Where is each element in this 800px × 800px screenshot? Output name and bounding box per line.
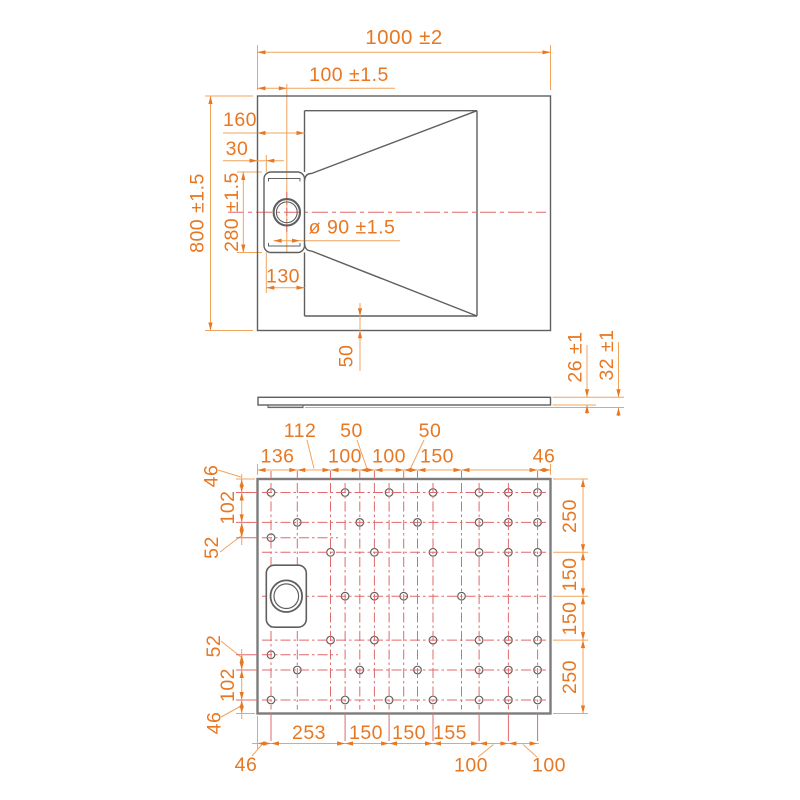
dim-edge-to-basin: 160: [223, 109, 257, 131]
dimension-arrowhead: [616, 408, 620, 416]
dimension-arrowhead: [352, 468, 360, 472]
dim-drain-recess-length: 280 ±1.5: [221, 172, 243, 252]
dimension-arrowhead: [543, 468, 551, 472]
tray-outline-top-view: [258, 96, 551, 331]
dim-bottom-top-150: 150: [420, 446, 454, 468]
dimension-arrowhead: [581, 552, 585, 560]
dimension-arrowhead: [289, 468, 297, 472]
dim-bottom-46: 46: [235, 754, 258, 776]
drain-frame-bottom-band: [269, 243, 301, 246]
dim-bottom-top-136: 136: [260, 446, 294, 468]
tray-profile: [258, 397, 551, 405]
dimension-arrowhead: [240, 485, 244, 493]
dimension-arrowhead: [530, 468, 538, 472]
drawing-svg: 1000 ±2 100 ±1.5 160 30 800 ±1.5 280 ±1.…: [0, 0, 800, 800]
slope-fold-line-upper: [312, 111, 478, 174]
dimension-arrowhead: [581, 632, 585, 640]
slope-fold-line-lower: [312, 251, 478, 316]
dimension-arrowhead: [543, 50, 551, 54]
dimension-arrowhead: [323, 468, 331, 472]
drain-plate-outer-circle: [271, 580, 303, 612]
dimension-arrowhead: [240, 493, 244, 501]
drain-corner-fillet-top: [305, 174, 312, 182]
dimension-arrowhead: [240, 692, 244, 700]
dim-edge-to-drain: 30: [226, 138, 249, 160]
dim-rim-width: 50: [336, 345, 358, 368]
dimension-arrowhead: [337, 741, 345, 745]
dimension-arrowhead: [471, 741, 479, 745]
dim-right-250b: 250: [559, 660, 581, 694]
dimension-arrowhead: [258, 50, 266, 54]
dimension-arrowhead: [530, 741, 538, 745]
dim-bottom-top-50b: 50: [419, 420, 442, 442]
dim-left-46: 46: [201, 465, 223, 488]
drain-frame-top-band: [269, 179, 301, 182]
dimension-arrowhead: [454, 468, 462, 472]
dimension-arrowhead: [462, 468, 470, 472]
dimension-arrowhead: [208, 96, 212, 104]
dimension-arrowhead: [581, 479, 585, 487]
drain-boss-profile: [268, 405, 303, 408]
dimension-arrowhead: [358, 308, 362, 316]
dim-left-lower-46: 46: [204, 712, 226, 735]
dim-total-height: 32 ±1: [596, 329, 618, 380]
dimension-arrowhead: [292, 239, 300, 243]
dimension-arrowhead: [279, 86, 287, 90]
dimension-arrowhead: [271, 741, 279, 745]
dim-bottom-top-112: 112: [284, 420, 317, 442]
dim-right-150b: 150: [559, 601, 581, 635]
dimension-arrowhead: [331, 468, 339, 472]
dimension-arrowhead: [410, 468, 418, 472]
top-view: [258, 96, 551, 331]
dim-drain-offset: 100 ±1.5: [309, 64, 389, 86]
dim-drain-recess-width: 130: [266, 266, 300, 288]
dimension-arrowhead: [240, 522, 244, 530]
dim-bottom-253: 253: [292, 722, 326, 744]
dimension-arrowhead: [425, 741, 433, 745]
dim-bottom-155: 155: [433, 722, 467, 744]
dim-bottom-150a: 150: [349, 722, 383, 744]
technical-drawing-sheet: 1000 ±2 100 ±1.5 160 30 800 ±1.5 280 ±1.…: [0, 0, 800, 800]
dimension-arrowhead: [418, 468, 426, 472]
dim-drain-diameter: ø 90 ±1.5: [309, 217, 396, 239]
dim-right-250a: 250: [559, 499, 581, 533]
dimension-arrowhead: [258, 86, 266, 90]
dim-right-150a: 150: [559, 557, 581, 591]
dimension-arrowhead: [479, 741, 487, 745]
leader-line: [307, 440, 314, 469]
dimension-arrowhead: [240, 670, 244, 678]
dimension-arrowhead: [258, 131, 266, 135]
dimension-arrowhead: [274, 239, 282, 243]
dim-left-52: 52: [201, 536, 223, 559]
dimension-arrowhead: [263, 741, 271, 745]
dimension-arrowhead: [240, 706, 244, 714]
dimension-arrowhead: [374, 468, 382, 472]
dimension-arrowhead: [366, 468, 374, 472]
dimension-arrowhead: [208, 323, 212, 331]
dimension-arrowhead: [396, 468, 404, 472]
dimension-arrowhead: [250, 159, 258, 163]
dimension-arrowhead: [581, 706, 585, 714]
dimension-arrowhead: [500, 741, 508, 745]
dim-bottom-100a: 100: [454, 755, 488, 777]
dim-left-lower-102: 102: [217, 668, 239, 702]
drain-corner-fillet-bottom: [305, 244, 312, 252]
dim-left-lower-52: 52: [203, 635, 225, 658]
dimension-arrowhead: [258, 468, 266, 472]
dim-left-102: 102: [217, 490, 239, 524]
dim-bottom-top-100b: 100: [372, 446, 406, 468]
dimension-arrowhead: [585, 389, 589, 397]
dimension-arrowhead: [585, 405, 589, 413]
dimension-arrowhead: [297, 468, 305, 472]
dimension-arrowhead: [616, 389, 620, 397]
dim-bottom-100b: 100: [532, 755, 566, 777]
dimension-arrowhead: [297, 131, 305, 135]
leader-line: [220, 536, 241, 552]
dimension-arrowhead: [266, 159, 274, 163]
dim-overall-width: 1000 ±2: [365, 26, 442, 49]
dim-bottom-top-50a: 50: [340, 420, 363, 442]
side-view: [258, 397, 551, 407]
dimension-arrowhead: [581, 640, 585, 648]
dimension-arrowhead: [581, 588, 585, 596]
dimension-arrowhead: [240, 662, 244, 670]
dim-bottom-top-46: 46: [533, 446, 556, 468]
dimension-arrowhead: [581, 544, 585, 552]
dimension-arrowhead: [358, 330, 362, 338]
dim-bottom-150b: 150: [392, 722, 426, 744]
dim-tray-thickness: 26 ±1: [565, 331, 587, 382]
dimension-arrowhead: [240, 514, 244, 522]
dimension-arrowhead: [581, 596, 585, 604]
bottom-view-drain: [266, 565, 306, 627]
dim-bottom-top-100a: 100: [328, 446, 362, 468]
dim-overall-depth: 800 ±1.5: [187, 173, 209, 253]
dimension-arrowhead: [508, 741, 516, 745]
